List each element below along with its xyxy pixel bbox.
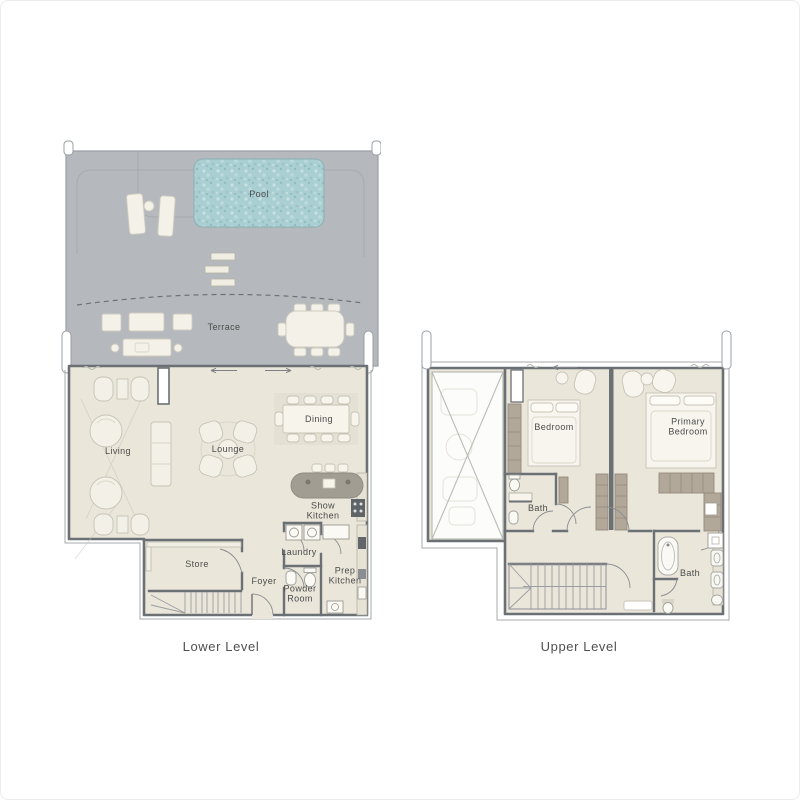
primary-closet [659, 473, 714, 493]
terrace-label: Terrace [208, 322, 241, 332]
dining-label: Dining [305, 414, 333, 424]
terrace-stub-right [372, 141, 381, 155]
show-kitchen-label: Show Kitchen [299, 501, 347, 522]
lower-plan-drawing [61, 139, 381, 635]
store-label: Store [185, 559, 209, 569]
upper-stub-left [422, 331, 431, 369]
upper-level-plan: Bedroom Primary Bedroom Bath Bath Upper … [419, 327, 739, 657]
powder-room-label: Powder Room [277, 584, 323, 605]
cooktop [351, 499, 365, 517]
living-column [158, 368, 169, 404]
void-open-to-below [432, 372, 503, 539]
floorplan-canvas: Pool Terrace Living Lounge Dining Show K… [0, 0, 800, 800]
lower-level-plan: Pool Terrace Living Lounge Dining Show K… [61, 139, 381, 659]
pool-label: Pool [249, 189, 269, 199]
bathtub [658, 537, 678, 575]
terrace-stub-left [64, 141, 73, 155]
prep-kitchen-label: Prep Kitchen [323, 566, 367, 587]
upper-plan-drawing [419, 327, 739, 627]
lower-level-caption: Lower Level [61, 639, 381, 654]
upper-level-caption: Upper Level [419, 639, 739, 654]
laundry-label: Laundry [281, 547, 316, 557]
upper-stub-right [722, 331, 731, 369]
hall-bench [624, 601, 652, 610]
primary-bedroom-label: Primary Bedroom [659, 417, 717, 438]
central-wall [609, 368, 614, 530]
living-label: Living [105, 446, 131, 456]
bath1-label: Bath [528, 503, 548, 513]
bath2-label: Bath [680, 568, 700, 578]
lounge-label: Lounge [212, 444, 244, 454]
bedroom-label: Bedroom [534, 422, 573, 432]
foyer-label: Foyer [251, 576, 276, 586]
terrace-area [66, 151, 378, 366]
